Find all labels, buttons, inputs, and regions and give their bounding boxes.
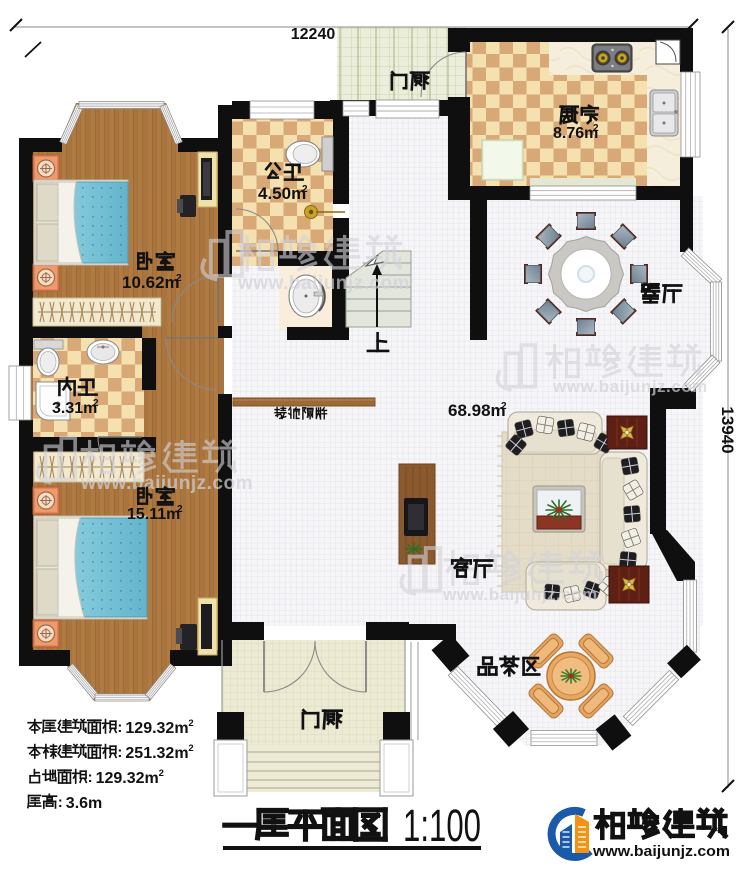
svg-text:3.31m: 3.31m <box>52 400 97 417</box>
svg-text:www.baijunjz.com: www.baijunjz.com <box>237 273 410 294</box>
svg-text:www.baijunjz.com: www.baijunjz.com <box>552 377 708 396</box>
svg-text:2: 2 <box>593 123 599 134</box>
svg-text:1:100: 1:100 <box>403 800 481 851</box>
svg-text:68.98m: 68.98m <box>448 401 506 420</box>
svg-text:8.76m: 8.76m <box>553 125 598 142</box>
svg-text:10.62m: 10.62m <box>122 273 180 292</box>
svg-text::: : <box>58 794 63 811</box>
svg-text:2: 2 <box>93 398 99 409</box>
svg-text:www.baijunjz.com: www.baijunjz.com <box>592 843 730 860</box>
svg-text:2: 2 <box>302 184 308 195</box>
svg-text:2: 2 <box>177 504 183 515</box>
svg-text:13940: 13940 <box>718 406 737 453</box>
svg-text:2: 2 <box>188 718 193 729</box>
svg-text:4.50m: 4.50m <box>258 184 306 203</box>
svg-text:129.32m: 129.32m <box>96 770 159 787</box>
svg-text:2: 2 <box>188 743 193 754</box>
svg-text:251.32m: 251.32m <box>125 745 188 762</box>
svg-text:www.baijunjz.com: www.baijunjz.com <box>442 585 598 604</box>
svg-text:12240: 12240 <box>291 26 336 43</box>
svg-text:15.11m: 15.11m <box>127 506 180 523</box>
svg-text::: : <box>117 744 122 761</box>
svg-text::: : <box>117 719 122 736</box>
svg-text:2: 2 <box>176 273 182 284</box>
svg-text::: : <box>88 769 93 786</box>
svg-text:2: 2 <box>501 401 507 412</box>
svg-text:2: 2 <box>159 768 164 779</box>
svg-text:129.32m: 129.32m <box>125 720 188 737</box>
svg-text:www.baijunjz.com: www.baijunjz.com <box>80 473 253 494</box>
svg-text:3.6m: 3.6m <box>66 795 102 812</box>
